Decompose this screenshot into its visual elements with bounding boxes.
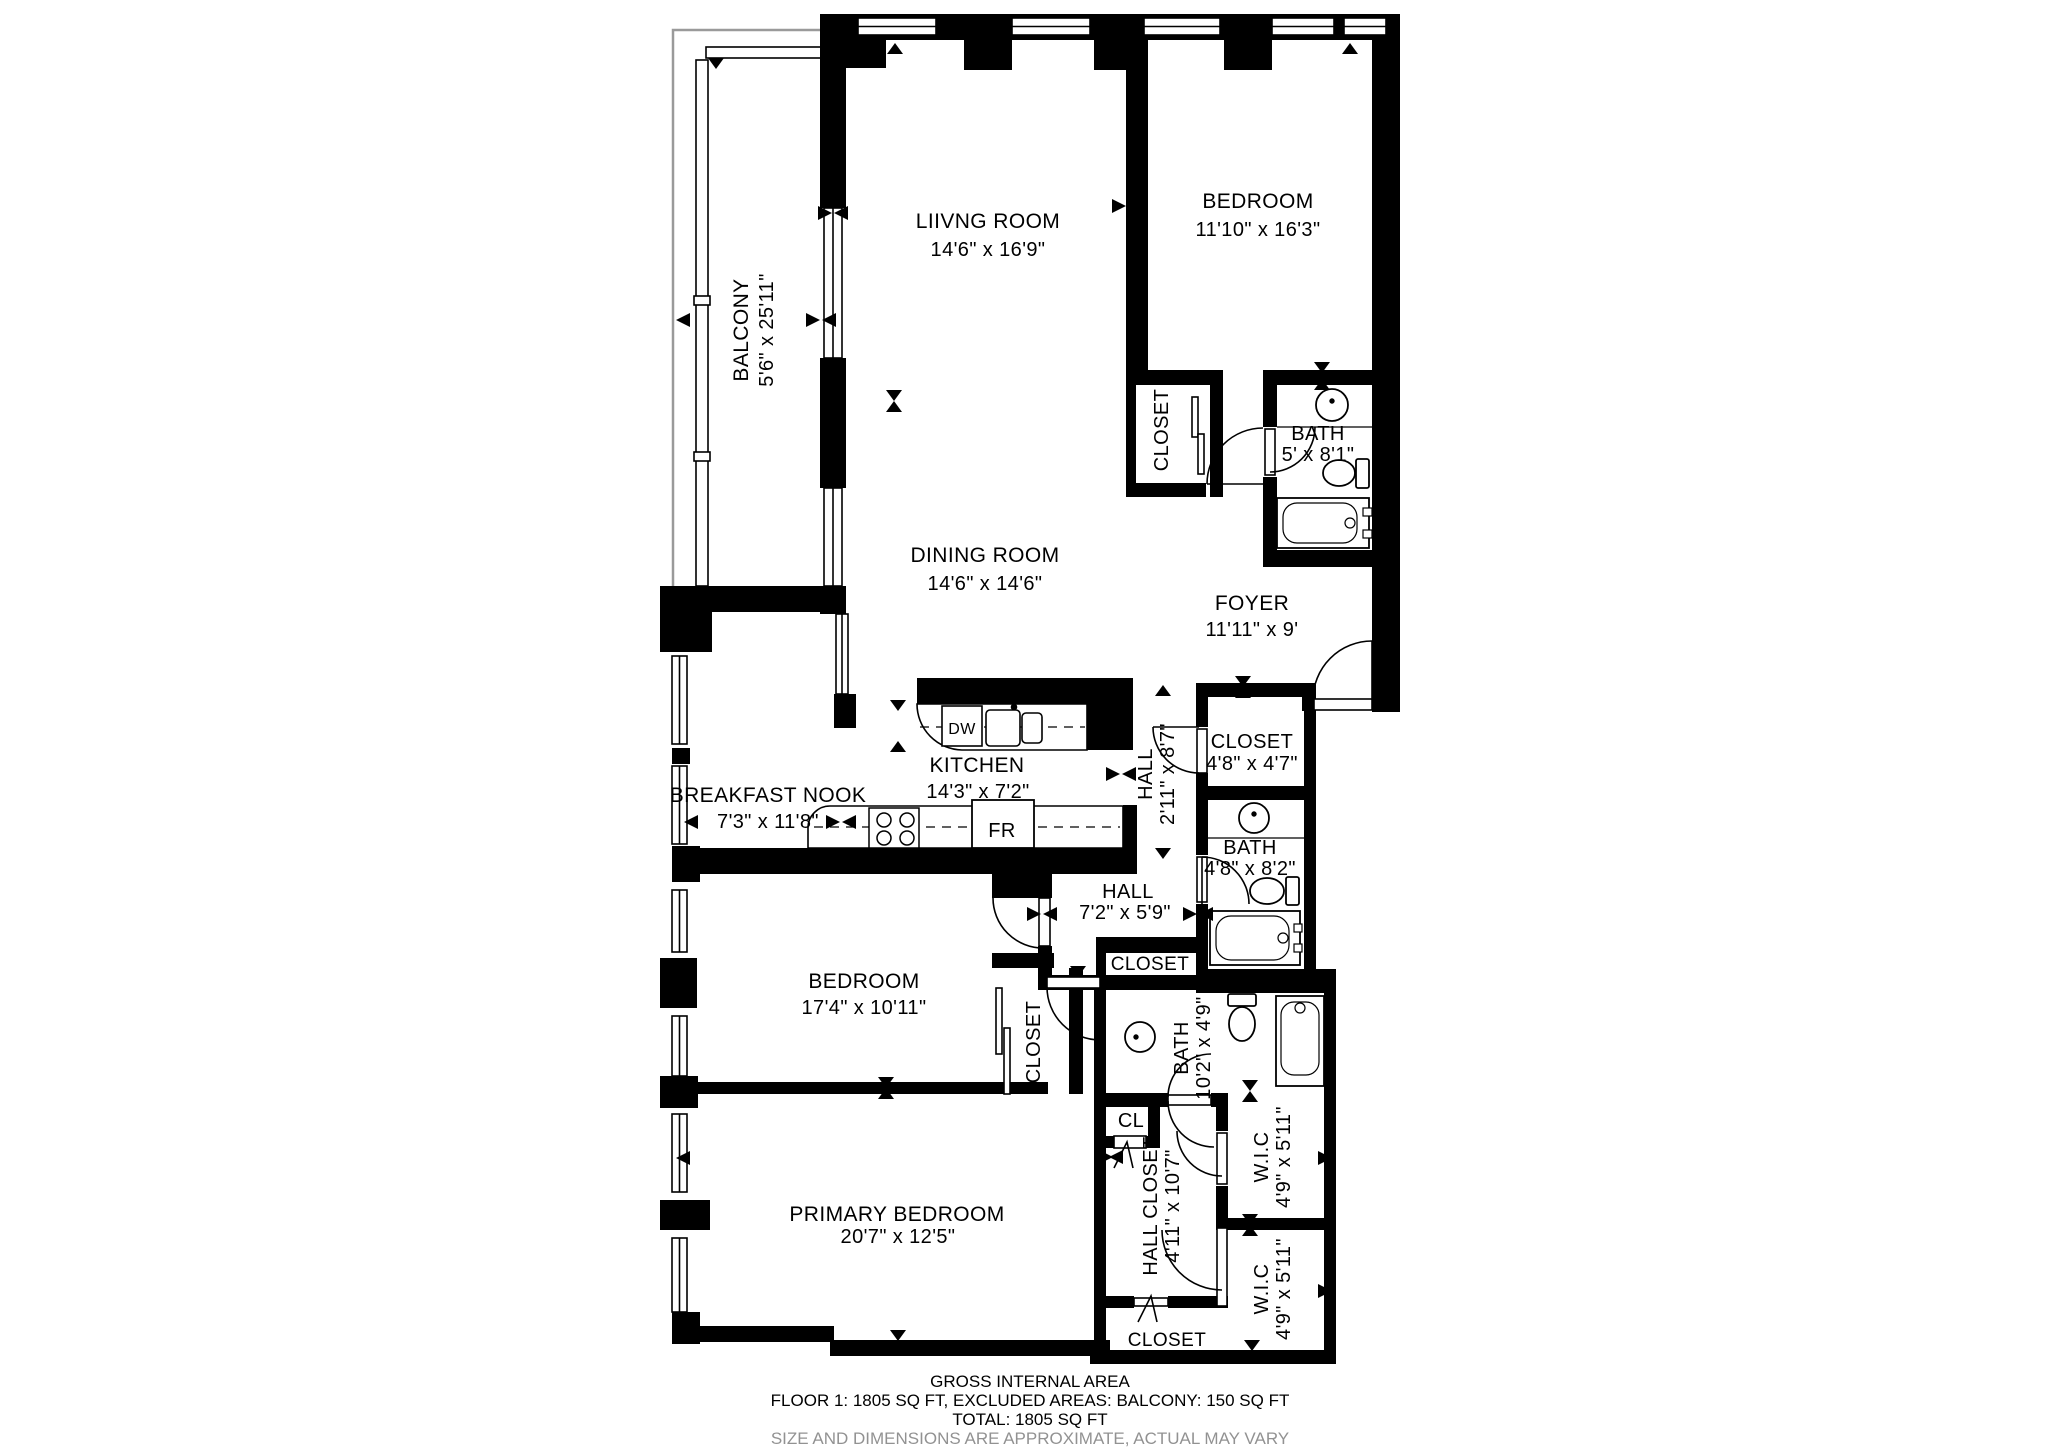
room-label-breakfast-nook: BREAKFAST NOOK [670,784,867,807]
hall-door-threshold [1047,977,1100,988]
room-label-kitchen: KITCHEN [930,754,1025,777]
room-label-hall-closet: HALL CLOSET [1140,1136,1162,1275]
sink-icon [1125,1022,1155,1052]
bath-top-threshold [1265,429,1275,475]
bath-top-fixtures [1277,389,1372,548]
window-icon [1344,18,1386,35]
window-icon [672,1114,687,1192]
window-icon [1144,18,1220,35]
room-label-closet-shallow: CLOSET [1111,954,1189,975]
window-icon [836,614,848,694]
sliding-door-icon [824,208,842,358]
disclaimer-line: SIZE AND DIMENSIONS ARE APPROXIMATE, ACT… [771,1429,1290,1447]
room-dims-bedroom-mid: 17'4" x 10'11" [802,997,927,1019]
room-label-cl: CL [1118,1110,1144,1132]
kitchen-counter-top [917,704,1087,750]
room-dims-foyer: 11'11" x 9' [1206,619,1299,641]
room-dims-dining-room: 14'6" x 14'6" [928,573,1043,595]
room-labels: BALCONY 5'6" x 25'11" LIIVNG ROOM 14'6" … [670,190,1355,1351]
floor-plan-sheet: BALCONY 5'6" x 25'11" LIIVNG ROOM 14'6" … [0,0,2048,1447]
sliding-door-icon [824,488,842,586]
fridge-label: FR [988,820,1015,842]
window-icon [672,656,687,744]
room-dims-hall-mid: 7'2" x 5'9" [1079,902,1171,924]
room-label-wic-top: W.I.C [1251,1132,1273,1183]
room-dims-wic-top: 4'9" x 5'11" [1273,1106,1295,1208]
room-label-living-room: LIIVNG ROOM [916,210,1060,233]
room-label-dining-room: DINING ROOM [910,544,1059,567]
total-area-line: TOTAL: 1805 SQ FT [771,1410,1290,1429]
room-dims-balcony: 5'6" x 25'11" [756,273,778,386]
room-dims-hall-narrow: 2'11" x 8'7" [1157,723,1179,825]
area-summary: GROSS INTERNAL AREA FLOOR 1: 1805 SQ FT,… [771,1372,1290,1447]
room-dims-bath-top: 5' x 8'1" [1282,444,1355,466]
room-dims-primary-bedroom: 20'7" x 12'5" [841,1226,956,1248]
room-label-bath-lower: BATH [1171,1021,1193,1074]
sink-icon [1316,389,1348,421]
gross-internal-area-line: GROSS INTERNAL AREA [771,1372,1290,1391]
floor-area-line: FLOOR 1: 1805 SQ FT, EXCLUDED AREAS: BAL… [771,1391,1290,1410]
bathtub-icon [1277,498,1372,548]
bathtub-icon [1210,911,1302,965]
room-label-bath-top: BATH [1291,423,1344,445]
room-label-closet-bottom: CLOSET [1128,1330,1206,1351]
window-icon [858,18,936,35]
window-icon [1012,18,1090,35]
room-label-bedroom-top: BEDROOM [1202,190,1313,213]
window-icon [672,890,687,952]
room-label-balcony: BALCONY [730,278,753,381]
dishwasher-label: DW [948,721,976,738]
room-label-hall-mid: HALL [1102,881,1154,903]
room-label-bedroom-mid-closet: CLOSET [1023,1001,1045,1083]
entry-threshold [1314,699,1372,710]
room-label-foyer: FOYER [1215,592,1289,615]
room-dims-bath-mid: 4'8" x 8'2" [1204,858,1296,880]
room-label-bedroom-mid: BEDROOM [808,970,919,993]
room-dims-bedroom-top: 11'10" x 16'3" [1196,219,1321,241]
room-label-closet-foyer: CLOSET [1211,731,1293,753]
toilet-icon [1250,877,1299,905]
room-label-hall-narrow: HALL [1135,748,1157,800]
room-label-wic-bottom: W.I.C [1251,1264,1273,1315]
entry-door-icon [1313,641,1372,700]
stove-icon [869,808,919,848]
room-dims-living-room: 14'6" x 16'9" [931,239,1046,261]
room-dims-hall-closet: 4'11" x 10'7" [1162,1149,1184,1262]
room-dims-bath-lower: 10'2" x 4'9" [1193,996,1215,1099]
room-dims-breakfast-nook: 7'3" x 11'8" [717,811,819,833]
wic-bottom-threshold [1217,1228,1227,1306]
room-label-bedroom-top-closet: CLOSET [1151,389,1173,471]
toilet-icon [1228,994,1256,1041]
floor-plan-svg: BALCONY 5'6" x 25'11" LIIVNG ROOM 14'6" … [0,0,2048,1447]
room-label-bath-mid: BATH [1223,837,1276,859]
sliding-door-icon [1192,397,1204,474]
bath-mid-fixtures [1208,803,1304,965]
sink-icon [1239,803,1269,833]
room-dims-kitchen: 14'3" x 7'2" [926,781,1029,803]
bedroom-mid-door-icon [993,898,1043,948]
sliding-door-icon [996,988,1010,1094]
window-icon [1272,18,1334,35]
room-label-primary-bedroom: PRIMARY BEDROOM [789,1203,1004,1226]
bedroom-door-threshold [1039,898,1050,946]
window-icon [672,1016,687,1076]
hall-closet-door-icon [1168,1101,1214,1147]
bath-lower-fixtures [1125,994,1324,1086]
window-icon [672,1238,687,1312]
room-dims-wic-bottom: 4'9" x 5'11" [1273,1238,1295,1340]
bathtub-icon [1276,996,1324,1086]
room-dims-closet-foyer: 4'8" x 4'7" [1206,753,1298,775]
